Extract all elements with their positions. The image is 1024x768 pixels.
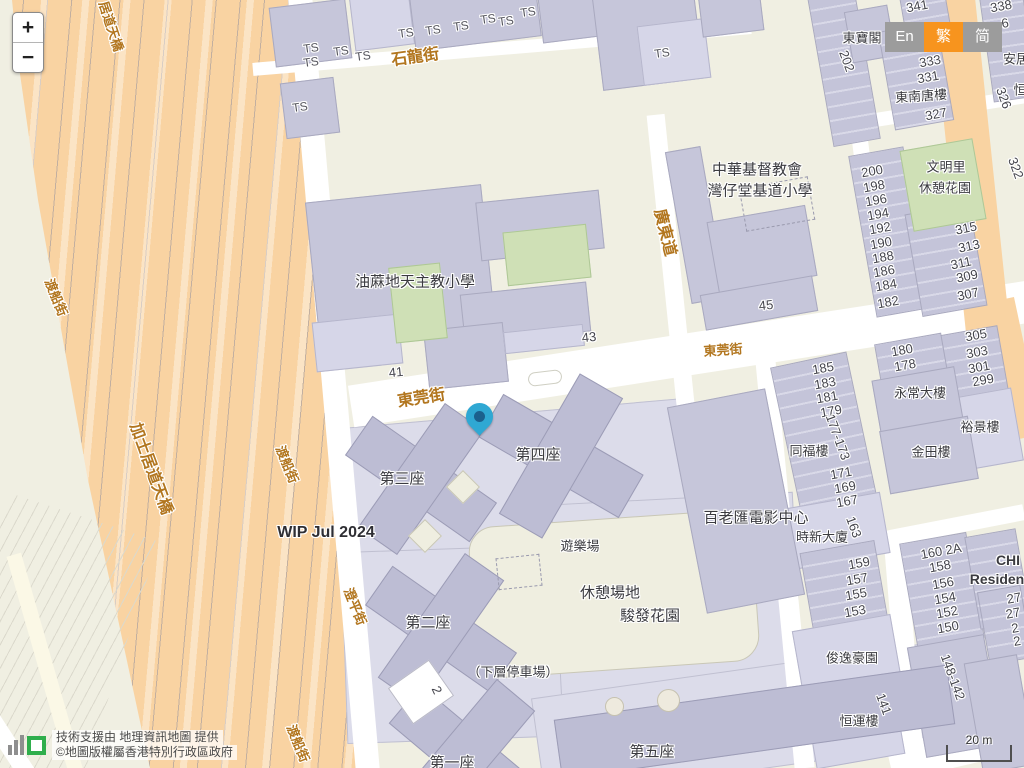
map-shape [605,697,624,716]
geoinfo-map-logo[interactable] [8,726,46,758]
lang-button-en[interactable]: En [885,22,924,52]
attribution-support: 技術支援由 地理資訊地圖 提供 [52,730,223,745]
logo-bar [14,740,18,755]
map-shape [698,0,765,38]
zoom-in-button[interactable]: + [13,13,43,43]
zoom-control: + − [12,12,44,73]
attribution-lines: 技術支援由 地理資訊地圖 提供 ©地圖版權屬香港特別行政區政府 [52,730,237,760]
lang-button-zh-hant[interactable]: 繁 [924,22,963,52]
map-shape [269,0,353,67]
attribution: 技術支援由 地理資訊地圖 提供 ©地圖版權屬香港特別行政區政府 [8,726,237,760]
attribution-copyright: ©地圖版權屬香港特別行政區政府 [52,745,237,760]
pin-center-dot [472,409,488,425]
map-shape [637,18,712,86]
map-shape [349,0,415,51]
scale-bar: 20 m [946,734,1012,762]
zoom-out-button[interactable]: − [13,43,43,72]
logo-bar [8,745,12,755]
map-shape [388,262,448,343]
map-shape [502,224,591,286]
map-shape [312,314,404,373]
lang-button-zh-hans[interactable]: 简 [963,22,1002,52]
logo-bar [20,735,24,755]
map-canvas[interactable]: 石龍街東莞街東莞街廣東道渡船街渡船街渡船街加士居道天橋居道天橋澄平街油蔴地天主教… [0,0,1024,768]
label-cccc-school-line1: 中華基督教會 [712,159,802,180]
scale-bar-bracket [946,745,1012,762]
language-switcher: En繁简 [885,22,1002,52]
logo-square [27,736,46,755]
map-shape [899,138,986,232]
map-shape [280,77,340,139]
map-shape [495,554,542,590]
map-shape [657,689,680,712]
building-number: 322 [1005,155,1024,181]
